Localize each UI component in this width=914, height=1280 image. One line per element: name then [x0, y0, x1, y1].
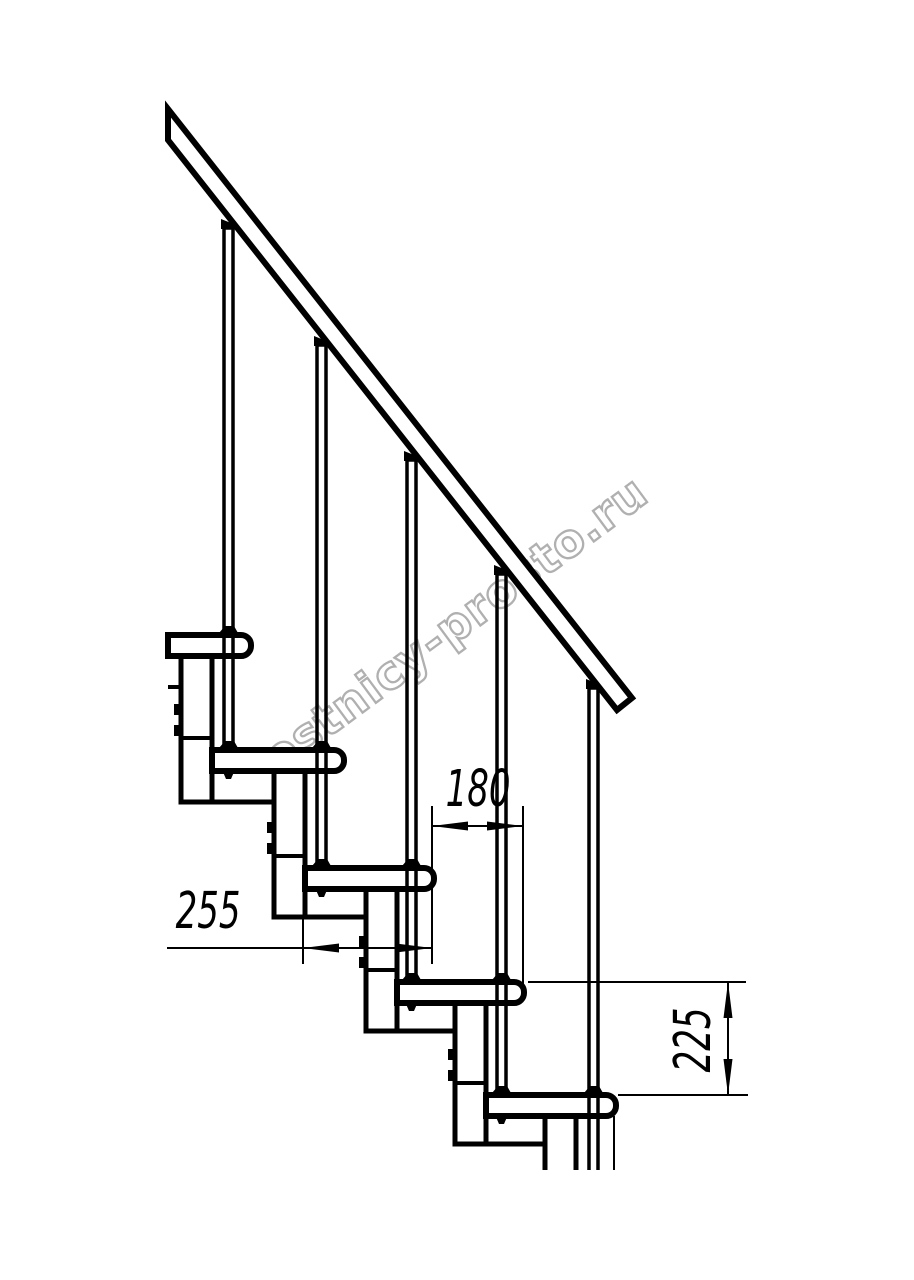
- tread-mount-icon: [312, 859, 331, 866]
- tread-1: [168, 635, 251, 656]
- dimension-180: 180: [432, 760, 523, 986]
- bolt-icon: [448, 1049, 455, 1060]
- stair-side-view-drawing: lestnicy-prosto.ru: [0, 0, 914, 1280]
- tread-collar-icon: [219, 626, 238, 633]
- support-column-2: [274, 765, 305, 917]
- bolt-icon: [267, 843, 274, 854]
- bolt-icon: [359, 936, 366, 947]
- tread-collar-icon: [584, 1086, 603, 1093]
- dimension-225-label: 225: [664, 1008, 723, 1073]
- stair-drawing-canvas: lestnicy-prosto.ru: [0, 0, 914, 1280]
- arrowhead-down-icon: [724, 1059, 733, 1095]
- handrail: [168, 109, 632, 710]
- dimension-180-label: 180: [446, 760, 511, 819]
- bolt-icon: [267, 822, 274, 833]
- bolt-icon: [174, 704, 181, 715]
- support-column-4: [455, 996, 486, 1144]
- baluster-2: [312, 336, 331, 897]
- treads: [168, 635, 616, 1116]
- support-column-1: [181, 650, 212, 802]
- bolt-icon: [174, 725, 181, 736]
- baluster-3: [402, 451, 421, 1011]
- baluster-1: [219, 219, 238, 779]
- arrowhead-left-icon: [303, 944, 339, 953]
- bolt-icon: [359, 957, 366, 968]
- arrowhead-right-icon: [396, 944, 432, 953]
- dimension-255-label: 255: [176, 882, 241, 941]
- tread-collar-icon: [492, 973, 511, 980]
- tread-collar-icon: [402, 859, 421, 866]
- tread-mount-icon: [402, 973, 421, 980]
- tread-mount-icon: [219, 741, 238, 748]
- tread-mount-icon: [492, 1086, 511, 1093]
- dimension-225: 225: [528, 982, 748, 1095]
- baluster-4: [492, 565, 511, 1124]
- support-column-3: [366, 882, 397, 1031]
- watermark-text: lestnicy-prosto.ru: [239, 465, 657, 794]
- arrowhead-up-icon: [724, 982, 733, 1018]
- tread-2: [212, 750, 344, 771]
- arrowhead-left-icon: [432, 822, 468, 831]
- bolt-icon: [448, 1070, 455, 1081]
